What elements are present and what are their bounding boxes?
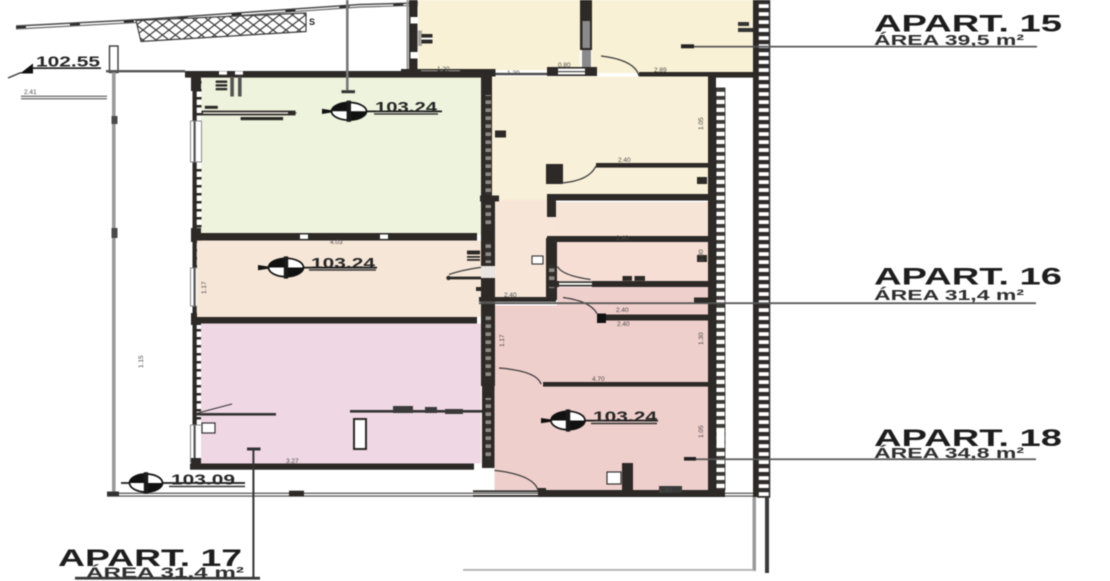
svg-text:0.80: 0.80 — [558, 62, 571, 69]
svg-text:ÁREA 31,4 m²: ÁREA 31,4 m² — [874, 287, 1024, 304]
svg-text:1.17: 1.17 — [201, 281, 208, 294]
svg-text:1.05: 1.05 — [698, 117, 705, 130]
svg-text:2.40: 2.40 — [504, 292, 517, 299]
svg-text:2.40: 2.40 — [617, 321, 630, 328]
svg-text:1.30: 1.30 — [698, 332, 705, 345]
svg-text:1.15: 1.15 — [138, 355, 145, 368]
svg-text:1.80: 1.80 — [698, 249, 705, 262]
svg-text:2.89: 2.89 — [654, 67, 667, 74]
svg-text:4.03: 4.03 — [330, 239, 343, 246]
svg-text:2.41: 2.41 — [24, 89, 37, 96]
svg-text:3.27: 3.27 — [286, 458, 299, 465]
svg-text:2.40: 2.40 — [616, 235, 629, 242]
svg-text:S: S — [309, 17, 315, 27]
svg-text:1.05: 1.05 — [698, 425, 705, 438]
svg-text:1.20: 1.20 — [507, 70, 520, 77]
svg-text:2.40: 2.40 — [618, 157, 631, 164]
svg-text:1.20: 1.20 — [437, 66, 450, 73]
svg-text:1.40: 1.40 — [659, 487, 672, 494]
svg-text:4.70: 4.70 — [592, 376, 605, 383]
svg-text:1.17: 1.17 — [499, 334, 506, 347]
svg-text:2.40: 2.40 — [616, 307, 629, 314]
